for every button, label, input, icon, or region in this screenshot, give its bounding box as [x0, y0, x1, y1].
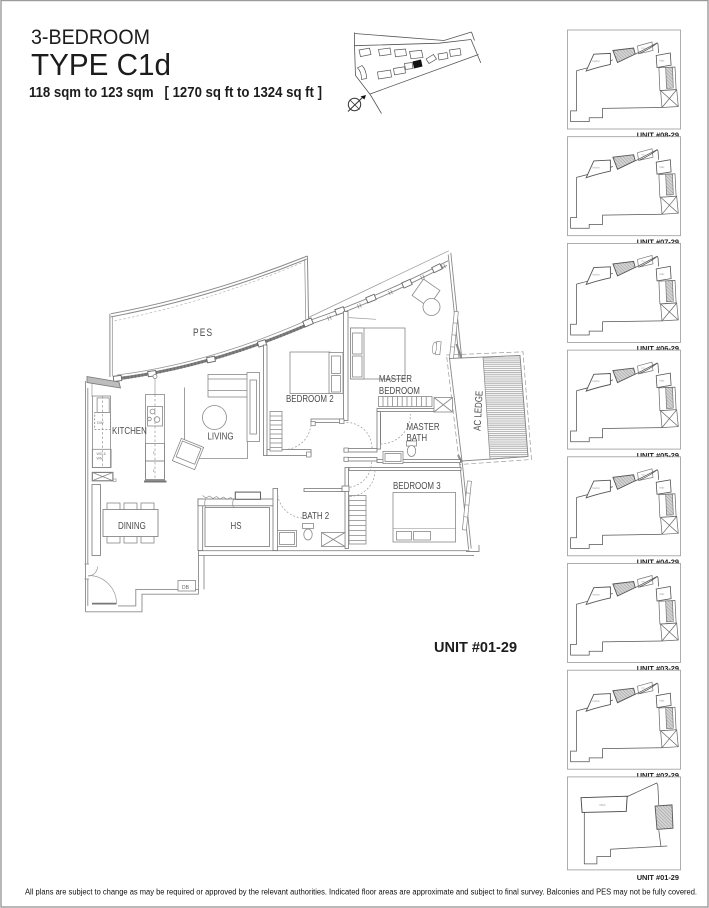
svg-text:WD &: WD & — [97, 452, 107, 456]
svg-text:DB: DB — [182, 585, 190, 591]
svg-text:BATH 2: BATH 2 — [302, 510, 329, 521]
svg-text:TYPE C1d: TYPE C1d — [31, 48, 171, 82]
svg-text:PES: PES — [193, 327, 213, 339]
svg-text:HS: HS — [231, 520, 242, 531]
svg-text:118 sqm to 123 sqm [ 1270 sq: 118 sqm to 123 sqm [ 1270 sq ft to 1324 … — [29, 84, 322, 101]
svg-text:BATH: BATH — [407, 432, 428, 443]
svg-text:All plans are subject to chang: All plans are subject to change as may b… — [25, 888, 697, 897]
svg-text:BEDROOM 2: BEDROOM 2 — [286, 393, 334, 404]
svg-text:DW: DW — [97, 420, 104, 425]
svg-text:MASTER: MASTER — [407, 421, 440, 432]
svg-text:DINING: DINING — [118, 520, 146, 531]
svg-text:3-BEDROOM: 3-BEDROOM — [31, 26, 150, 49]
svg-text:AC LEDGE: AC LEDGE — [472, 390, 485, 431]
svg-text:UNIT #01-29: UNIT #01-29 — [434, 640, 517, 656]
svg-text:WM: WM — [97, 457, 103, 461]
svg-text:KITCHEN: KITCHEN — [112, 425, 147, 436]
svg-text:UNIT #01-29: UNIT #01-29 — [637, 873, 679, 882]
svg-text:BEDROOM: BEDROOM — [379, 385, 420, 396]
svg-text:LIVING: LIVING — [208, 431, 234, 442]
svg-text:MASTER: MASTER — [379, 373, 412, 384]
svg-text:BEDROOM 3: BEDROOM 3 — [393, 480, 441, 491]
